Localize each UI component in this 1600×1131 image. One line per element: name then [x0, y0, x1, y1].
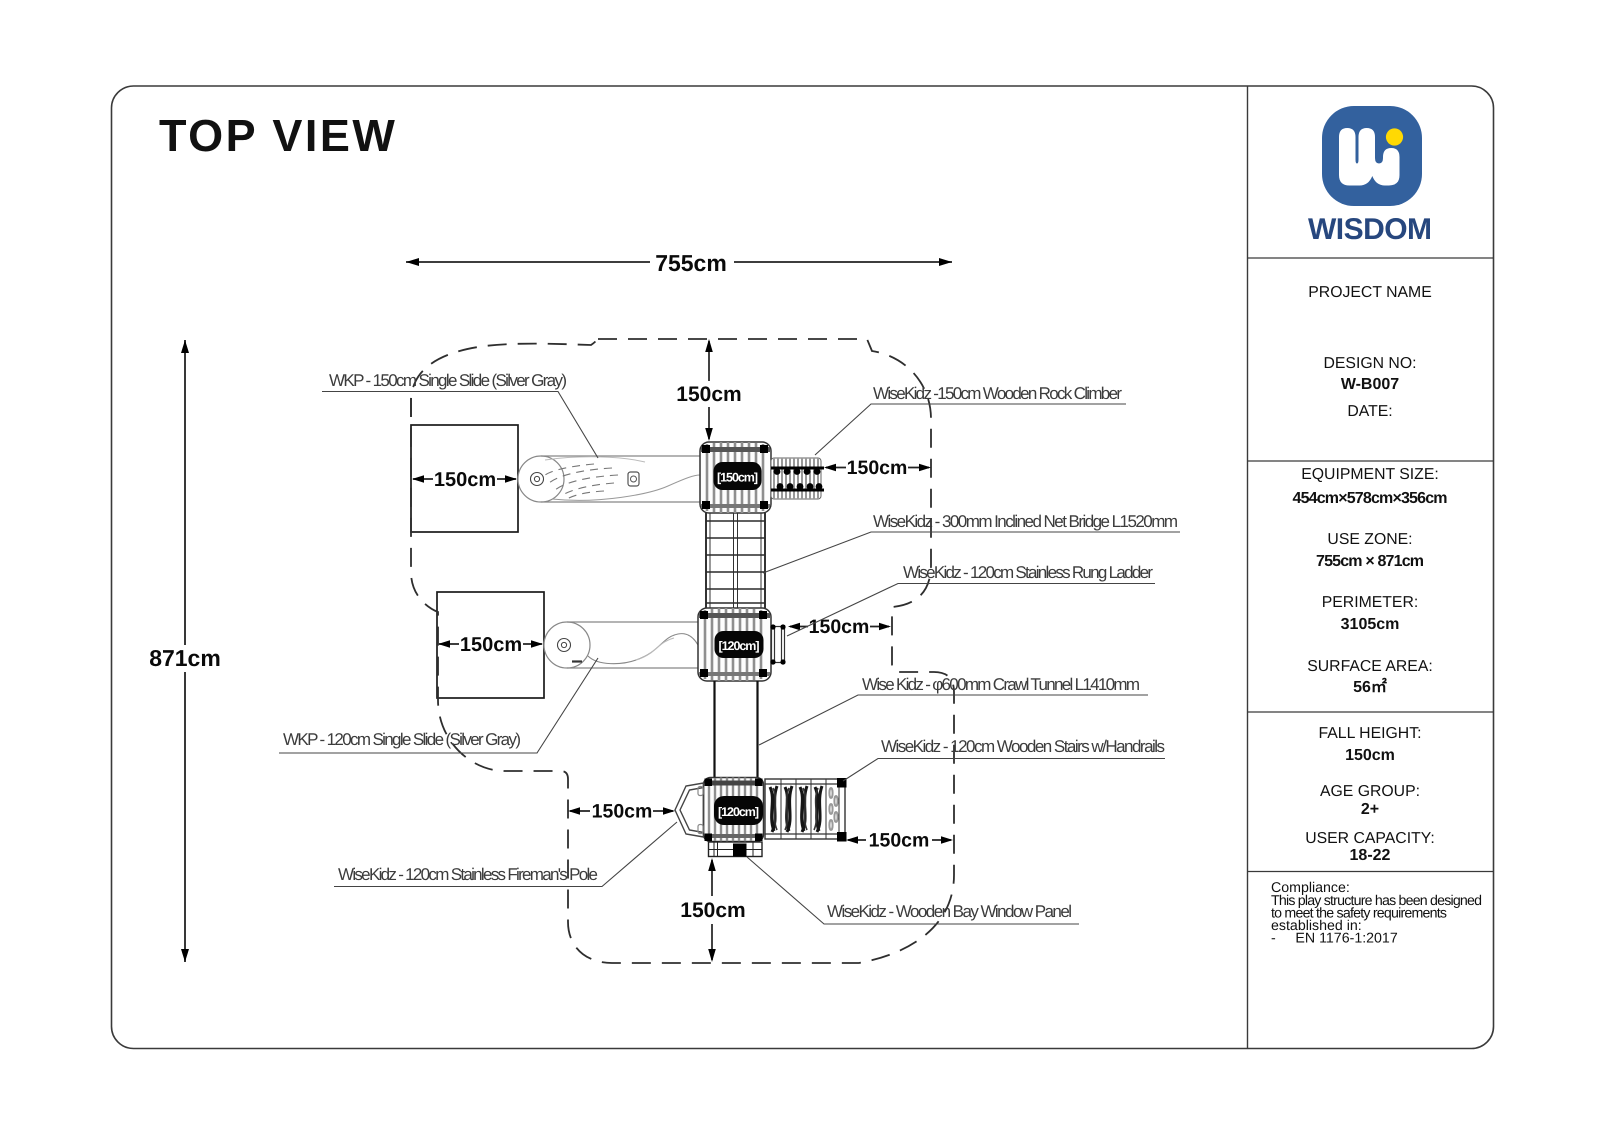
svg-text:PROJECT NAME: PROJECT NAME — [1308, 284, 1431, 301]
svg-text:WiseKidz - 300mm Inclined Net: WiseKidz - 300mm Inclined Net Bridge L15… — [873, 512, 1178, 531]
svg-text:WKP - 120cm Single Slide (Silv: WKP - 120cm Single Slide (Silver Gray) — [283, 730, 521, 749]
svg-text:DESIGN NO:: DESIGN NO: — [1323, 355, 1416, 372]
svg-text:755cm: 755cm — [655, 250, 727, 276]
svg-text:56㎡: 56㎡ — [1353, 677, 1387, 696]
svg-text:EQUIPMENT SIZE:: EQUIPMENT SIZE: — [1301, 466, 1439, 483]
svg-text:TOP VIEW: TOP VIEW — [159, 110, 397, 161]
svg-text:W-B007: W-B007 — [1341, 376, 1399, 393]
svg-text:WKP - 150cm Single Slide (Silv: WKP - 150cm Single Slide (Silver Gray) — [329, 371, 567, 390]
svg-text:WiseKidz - 120cm Stainless Run: WiseKidz - 120cm Stainless Rung Ladder — [903, 563, 1153, 582]
svg-text:USE ZONE:: USE ZONE: — [1327, 531, 1412, 548]
svg-text:150cm: 150cm — [869, 830, 930, 852]
svg-text:PERIMETER:: PERIMETER: — [1322, 594, 1419, 611]
svg-text:150cm: 150cm — [847, 457, 908, 479]
svg-text:AGE GROUP:: AGE GROUP: — [1320, 783, 1420, 800]
svg-text:3105cm: 3105cm — [1341, 616, 1400, 633]
svg-text:WiseKidz - 120cm Wooden Stairs: WiseKidz - 120cm Wooden Stairs w/Handrai… — [881, 737, 1165, 756]
svg-text:Wise Kidz - φ600mm Crawl Tunne: Wise Kidz - φ600mm Crawl Tunnel L1410mm — [862, 675, 1140, 694]
svg-text:150cm: 150cm — [676, 383, 741, 406]
svg-text:871cm: 871cm — [149, 645, 221, 671]
svg-text:18-22: 18-22 — [1350, 847, 1391, 864]
svg-text:[150cm]: [150cm] — [717, 471, 758, 485]
svg-text:150cm: 150cm — [434, 469, 496, 491]
svg-text:FALL HEIGHT:: FALL HEIGHT: — [1318, 725, 1421, 742]
svg-text:WiseKidz - 120cm Stainless Fir: WiseKidz - 120cm Stainless Fireman's Pol… — [338, 865, 598, 884]
svg-text:WISDOM: WISDOM — [1308, 213, 1432, 246]
svg-text:WiseKidz -150cm Wooden Rock Cl: WiseKidz -150cm Wooden Rock Climber — [873, 384, 1122, 403]
svg-text:150cm: 150cm — [460, 634, 522, 656]
svg-text:150cm: 150cm — [809, 616, 870, 638]
svg-text:150cm: 150cm — [592, 801, 653, 823]
svg-text:[120cm]: [120cm] — [718, 805, 759, 819]
svg-text:- EN 1176-1:2017: - EN 1176-1:2017 — [1271, 931, 1398, 947]
svg-text:USER CAPACITY:: USER CAPACITY: — [1305, 830, 1435, 847]
svg-text:150cm: 150cm — [1345, 747, 1395, 764]
svg-text:454cm×578cm×356cm: 454cm×578cm×356cm — [1293, 490, 1448, 507]
svg-text:150cm: 150cm — [680, 899, 745, 922]
svg-text:SURFACE AREA:: SURFACE AREA: — [1307, 658, 1433, 675]
svg-text:WiseKidz - Wooden Bay Window P: WiseKidz - Wooden Bay Window Panel — [827, 902, 1072, 921]
svg-text:[120cm]: [120cm] — [719, 639, 760, 653]
svg-text:755cm × 871cm: 755cm × 871cm — [1316, 553, 1424, 570]
svg-text:2+: 2+ — [1361, 801, 1379, 818]
svg-text:DATE:: DATE: — [1347, 403, 1392, 420]
